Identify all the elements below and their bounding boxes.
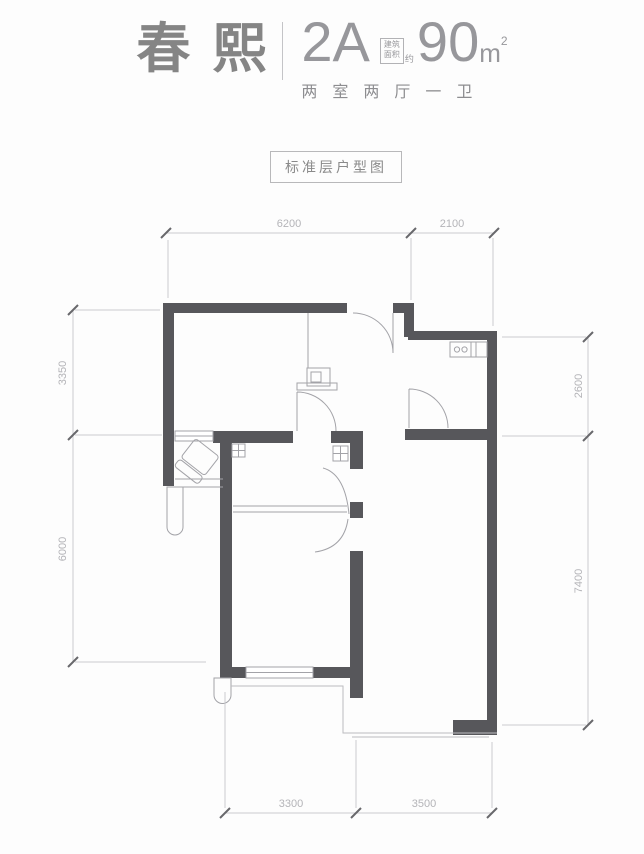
windows	[175, 431, 313, 678]
hall-partition-lines	[233, 506, 347, 512]
sink-basin-left	[454, 347, 459, 352]
wall-left	[163, 303, 174, 486]
floor-plan-page: 春熙 2A 建筑面积 约 90 m 2 两室两厅一卫 标准层户型图	[0, 0, 644, 854]
kitchen-door-arc	[409, 389, 448, 428]
balcony-column	[214, 678, 231, 704]
cabinet-inner	[311, 372, 321, 382]
bath-door-arc	[323, 468, 349, 514]
dim-left-1: 3350	[57, 361, 69, 385]
dim-top-1: 6200	[277, 218, 301, 230]
dim-right-1: 2600	[573, 374, 585, 398]
entry-door-arc	[353, 313, 393, 353]
dim-bottom-2: 3500	[412, 798, 436, 810]
hall-door-arc	[297, 392, 336, 431]
dim-left-2: 6000	[57, 537, 69, 561]
wall-kitchen-bottom	[405, 429, 487, 440]
dim-extension-lines	[75, 238, 586, 808]
wall-window-joint	[213, 431, 220, 443]
sink-basin-right	[462, 347, 467, 352]
dim-main-lines	[73, 233, 588, 813]
sink-icon	[450, 342, 487, 357]
dim-right-2: 7400	[573, 569, 585, 593]
toilet-icon	[174, 438, 219, 484]
dim-tick-marks	[68, 228, 593, 818]
wall-bottom-left-a	[220, 667, 246, 678]
bathtub-duct-icon	[167, 487, 183, 535]
wall-kitchen-top	[408, 331, 496, 340]
wall-bedroom-west	[220, 431, 232, 678]
sink-side-unit	[476, 342, 487, 357]
wall-right	[487, 331, 497, 735]
wall-corner-vert	[350, 431, 363, 469]
floor-plan-drawing: 6200 2100 3350 6000 2600 7400 3300 3500	[0, 0, 644, 854]
dim-bottom-1: 3300	[279, 798, 303, 810]
dim-top-2: 2100	[440, 218, 464, 230]
wall-divider-jamb	[350, 502, 363, 518]
wall-top-living	[163, 303, 347, 313]
wall-bottom-left-b	[313, 667, 363, 678]
bedroom-door-arc	[315, 519, 348, 552]
